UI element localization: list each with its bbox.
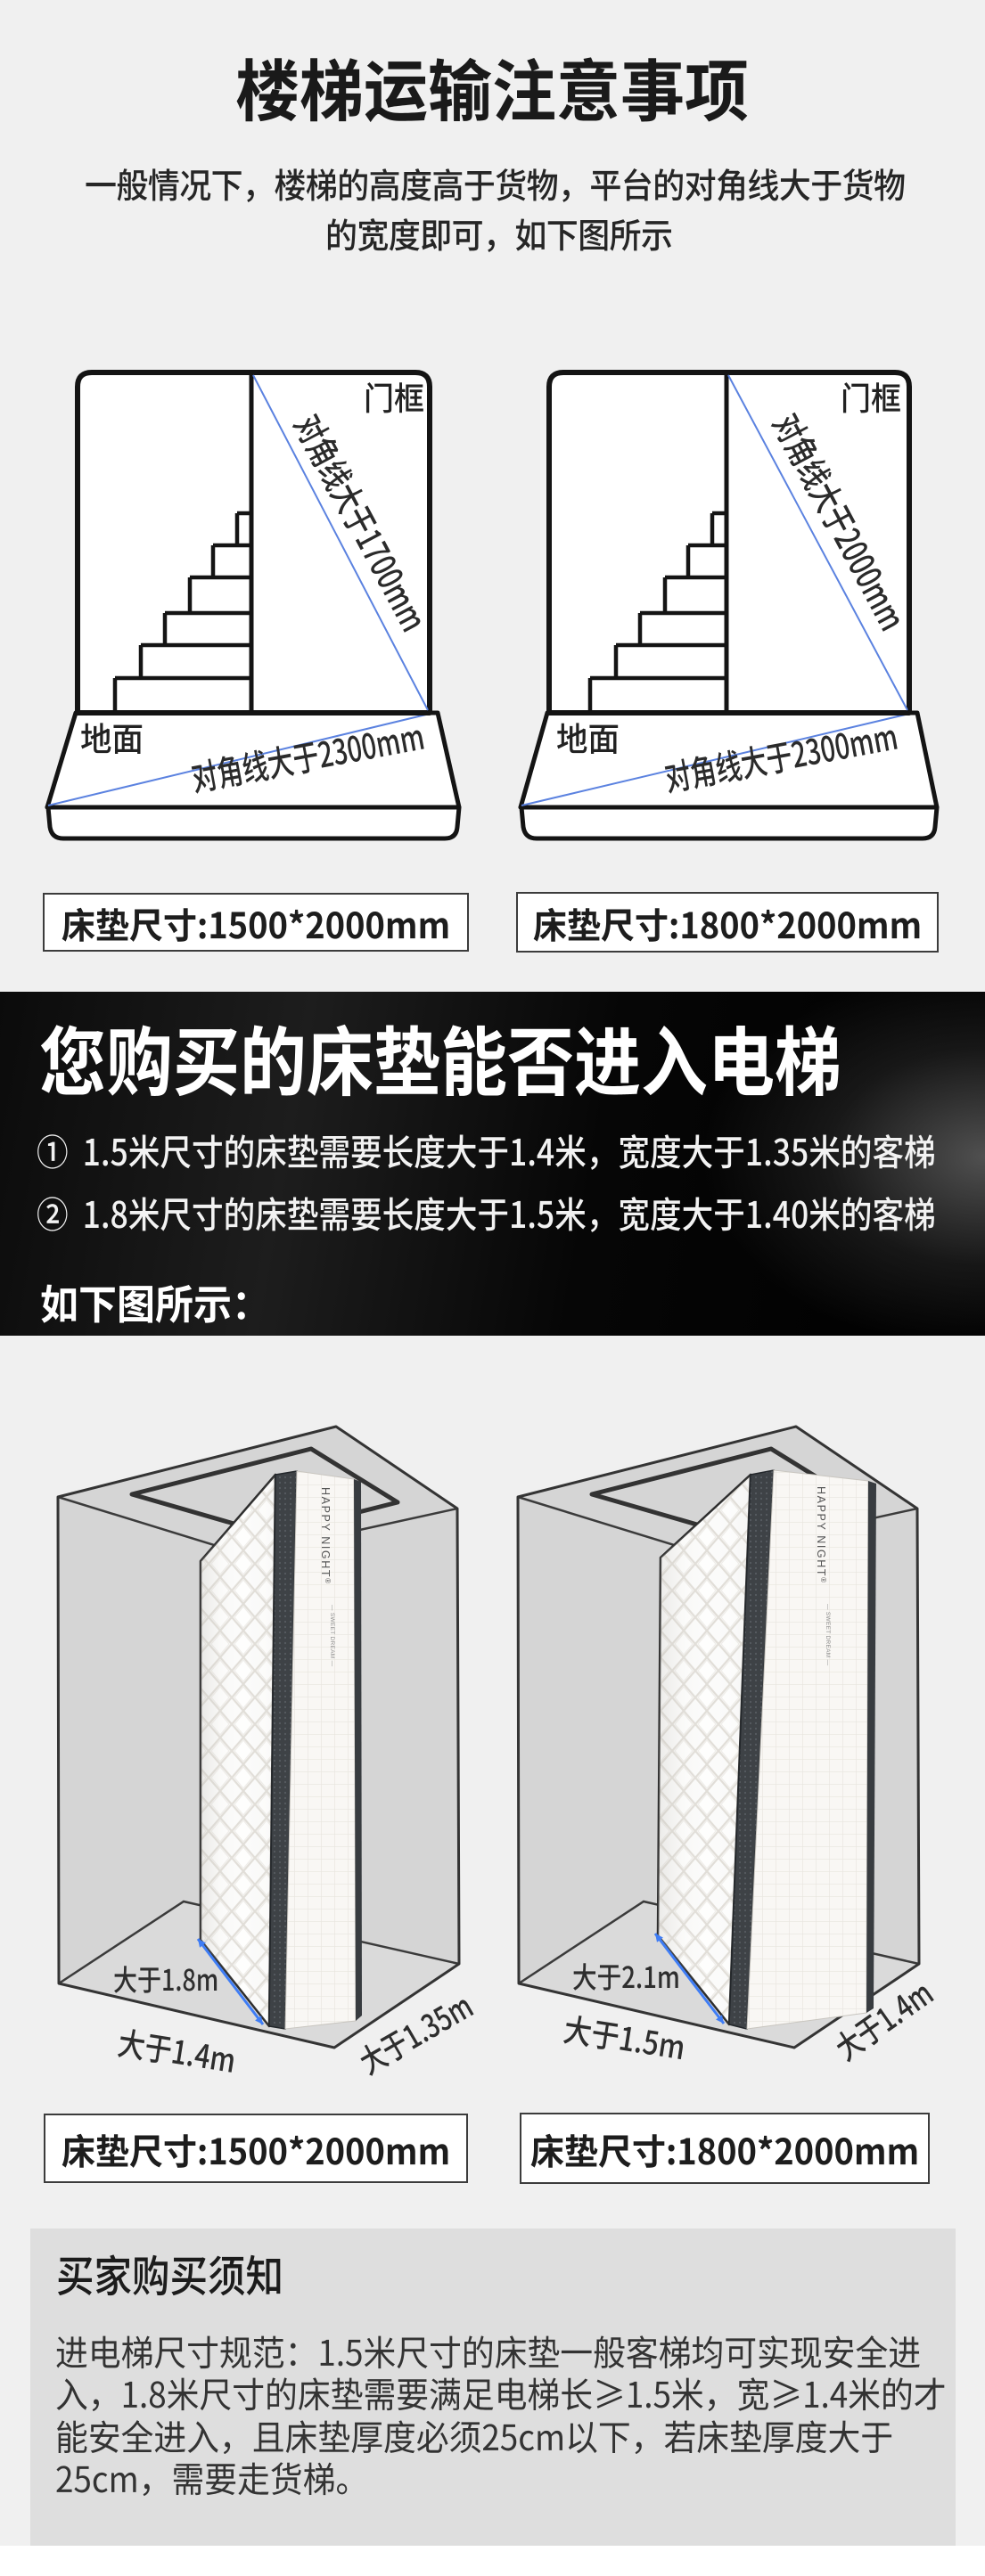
svg-text:— SWEET DREAM —: — SWEET DREAM — <box>329 1605 335 1667</box>
svg-text:HAPPY NIGHT®: HAPPY NIGHT® <box>319 1487 332 1585</box>
svg-text:— SWEET DREAM —: — SWEET DREAM — <box>825 1604 831 1666</box>
svg-text:HAPPY NIGHT®: HAPPY NIGHT® <box>815 1486 827 1584</box>
